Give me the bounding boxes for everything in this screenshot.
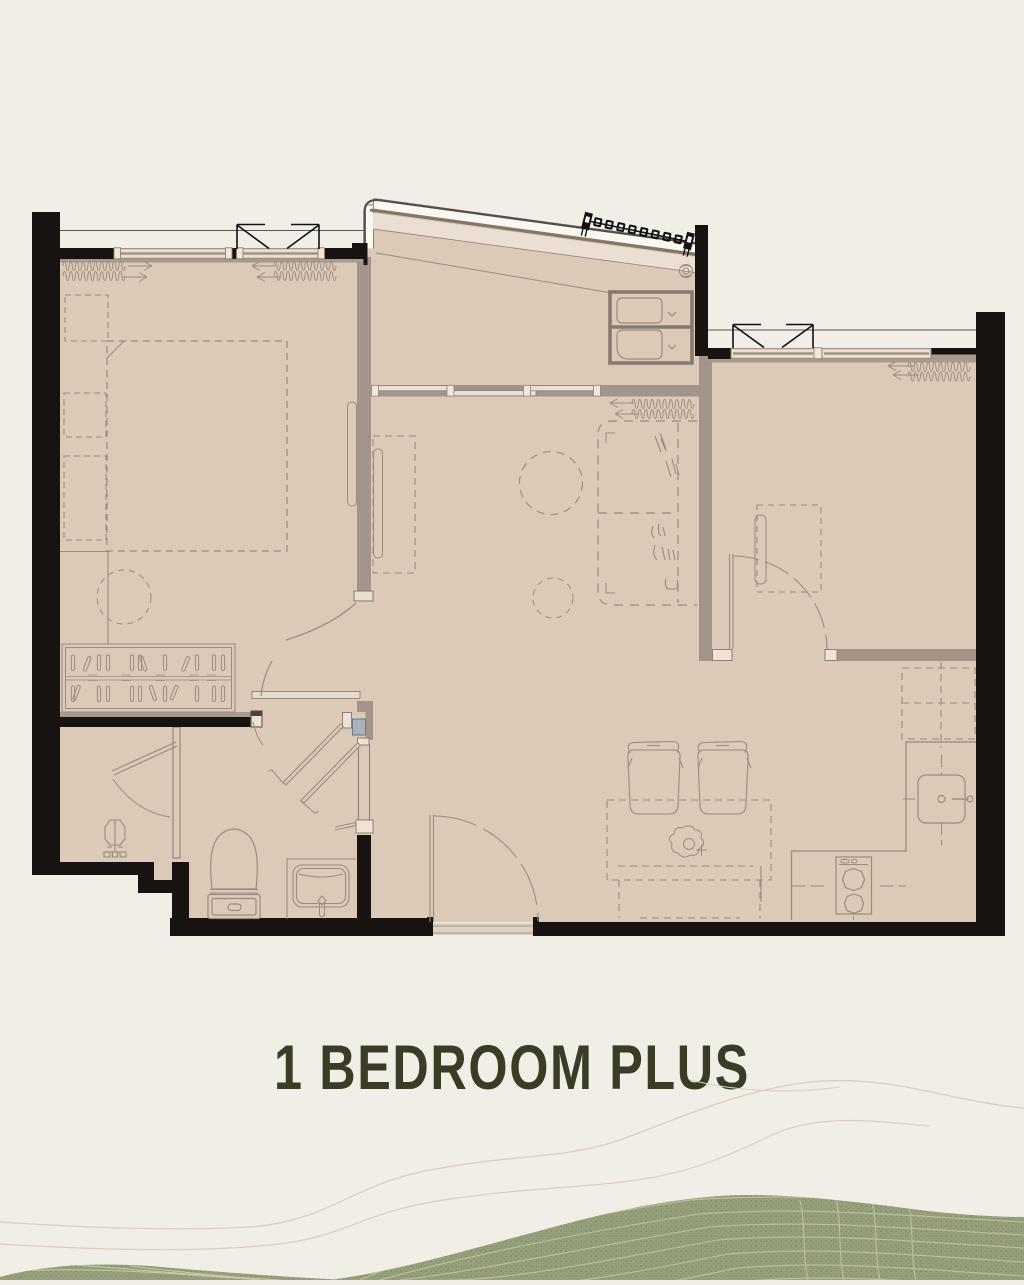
svg-text:1 BEDROOM PLUS: 1 BEDROOM PLUS xyxy=(274,1033,750,1103)
